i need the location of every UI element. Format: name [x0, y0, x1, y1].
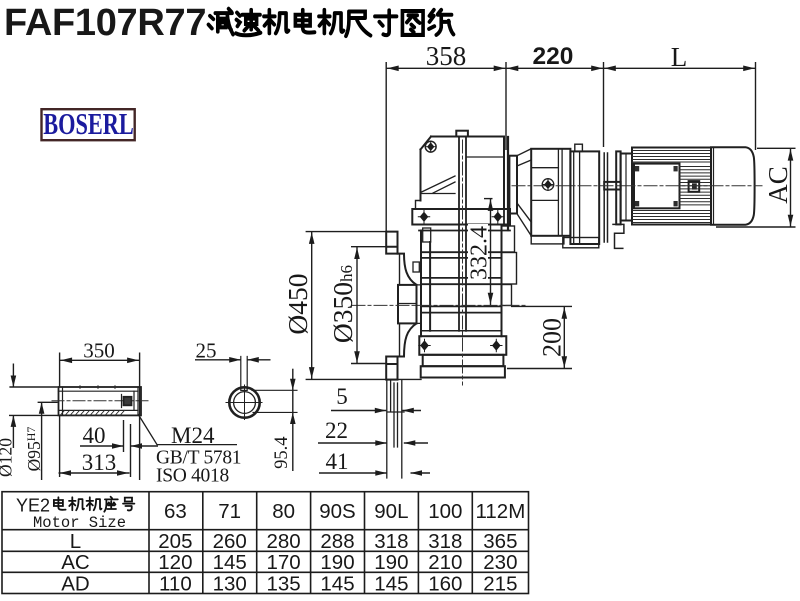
svg-text:25: 25 — [196, 339, 217, 363]
svg-text:Ø450: Ø450 — [282, 273, 313, 334]
svg-text:Ø120: Ø120 — [0, 438, 15, 477]
svg-text:200: 200 — [538, 318, 567, 357]
svg-text:AD: AD — [61, 573, 89, 596]
svg-text:318: 318 — [374, 530, 408, 553]
svg-text:AC: AC — [61, 551, 90, 574]
svg-text:BOSERL: BOSERL — [43, 106, 134, 140]
svg-text:288: 288 — [320, 530, 354, 553]
svg-text:350: 350 — [83, 339, 115, 363]
svg-text:95.4: 95.4 — [272, 437, 292, 469]
svg-text:L: L — [671, 42, 688, 72]
svg-text:318: 318 — [428, 530, 462, 553]
svg-text:170: 170 — [266, 551, 300, 574]
svg-text:100: 100 — [428, 500, 462, 523]
svg-text:5: 5 — [336, 384, 348, 409]
svg-text:AC: AC — [763, 166, 793, 204]
svg-text:40: 40 — [83, 423, 106, 448]
svg-text:215: 215 — [483, 573, 517, 596]
svg-text:ISO 4018: ISO 4018 — [156, 466, 229, 487]
svg-text:135: 135 — [266, 573, 300, 596]
svg-text:80: 80 — [272, 500, 295, 523]
svg-text:90S: 90S — [319, 500, 355, 523]
svg-text:220: 220 — [533, 43, 574, 70]
svg-text:160: 160 — [428, 573, 462, 596]
svg-text:63: 63 — [164, 500, 187, 523]
svg-text:190: 190 — [374, 551, 408, 574]
svg-text:210: 210 — [428, 551, 462, 574]
svg-text:230: 230 — [483, 551, 517, 574]
svg-text:41: 41 — [326, 449, 349, 474]
svg-text:190: 190 — [320, 551, 354, 574]
svg-text:90L: 90L — [374, 500, 408, 523]
svg-text:365: 365 — [483, 530, 517, 553]
svg-text:332.4: 332.4 — [467, 226, 493, 280]
svg-text:FAF107R77: FAF107R77 — [4, 2, 206, 44]
svg-text:145: 145 — [320, 573, 354, 596]
svg-text:M24: M24 — [171, 423, 215, 448]
svg-text:120: 120 — [158, 551, 192, 574]
svg-text:358: 358 — [426, 41, 467, 71]
svg-text:145: 145 — [374, 573, 408, 596]
svg-text:YE2: YE2 — [16, 496, 50, 516]
svg-text:71: 71 — [218, 500, 241, 523]
svg-text:112M: 112M — [476, 500, 526, 523]
svg-text:205: 205 — [158, 530, 192, 553]
svg-text:22: 22 — [325, 418, 348, 443]
svg-text:145: 145 — [213, 551, 247, 574]
svg-text:260: 260 — [213, 530, 247, 553]
svg-text:130: 130 — [213, 573, 247, 596]
svg-text:Ø350h6: Ø350h6 — [327, 265, 358, 343]
svg-text:313: 313 — [82, 450, 117, 475]
svg-text:280: 280 — [266, 530, 300, 553]
svg-text:L: L — [70, 530, 81, 553]
svg-text:110: 110 — [159, 573, 192, 596]
